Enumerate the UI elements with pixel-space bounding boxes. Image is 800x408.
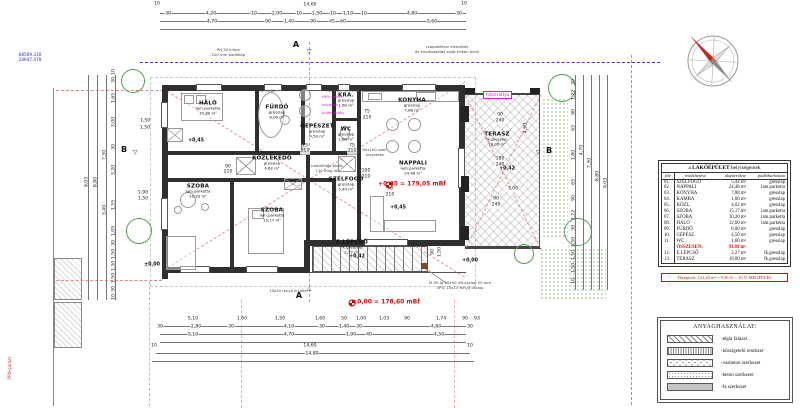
dimension-label: 10	[113, 69, 118, 76]
dimension-label: 210	[385, 194, 395, 199]
legend-item: -fa szerkezet	[667, 381, 783, 393]
dimension-label: 30	[319, 326, 326, 331]
legend-item-label: -beton szerkezet	[721, 373, 754, 378]
dimension-label: 30	[157, 326, 164, 331]
dimension-label: 10	[113, 294, 118, 301]
window	[402, 84, 436, 91]
sw-ins-swatch	[667, 347, 713, 355]
sw-rc-swatch	[667, 359, 713, 367]
furniture	[408, 118, 421, 131]
dimension-label: 210	[362, 117, 372, 122]
sw-brick-swatch	[667, 335, 713, 343]
annotation-marker: A	[293, 41, 299, 49]
dimension-label: 7,30	[589, 157, 594, 168]
annotation-eq: puffertartály	[322, 112, 345, 116]
dimension-label: 1,65	[113, 92, 118, 103]
furniture	[184, 95, 194, 104]
annotation-sill: m=1,80	[261, 90, 276, 94]
dimension-label: 90	[404, 318, 411, 323]
furniture	[408, 140, 421, 153]
dimension-line	[152, 361, 474, 362]
line	[454, 300, 455, 408]
heat-pump-label: hőszivattyú	[483, 91, 512, 99]
dimension-line	[160, 334, 466, 335]
room-schedule-table: a LAKÓÉPÜLET helyiségeinek jelerendeltet…	[661, 163, 788, 264]
schedule-row: 13.TERASZ18,00 m²fk.gresslap	[662, 257, 787, 263]
dimension-label: 5,60	[426, 21, 437, 26]
dimension-label: 1,05	[113, 225, 118, 236]
dimension-label: 30	[573, 79, 578, 86]
annotation-tri: △	[307, 286, 312, 292]
dimension-label: 4,20	[205, 13, 216, 18]
elevation-mark: +0,45	[390, 206, 406, 211]
elevation-mark: +0,42	[499, 167, 515, 172]
dimension-label: 2,80	[190, 326, 201, 331]
dimension-line	[583, 75, 584, 290]
dimension-label: 90	[493, 198, 500, 203]
annotation-eq: HMV tároló	[322, 96, 342, 100]
annotation-marker: B	[546, 147, 552, 155]
dimension-label: 10	[296, 13, 303, 18]
dimension-label: 1,90	[137, 192, 148, 197]
room-label: E.LÉPCSŐfk.gresslap2,27 m²	[336, 239, 368, 254]
furniture	[370, 196, 384, 232]
elevation-mark: ±0,00 = 178,60 mBf	[352, 299, 420, 306]
dimension-label: 30	[356, 326, 363, 331]
furniture	[166, 236, 196, 270]
floor-plan-canvas: a LAKÓÉPÜLET helyiségeinek jelerendeltet…	[0, 0, 800, 408]
dimension-label: 63	[573, 125, 578, 132]
dimension-label: 1,22	[573, 209, 578, 220]
legend-items: -tégla falazat-hőszigetelő rendszer-vasb…	[667, 333, 783, 393]
dimension-line	[160, 326, 466, 327]
elevation-mark: +0,00	[462, 259, 478, 264]
dimension-label: 1,50	[139, 127, 150, 132]
furniture	[174, 206, 182, 214]
sw-wood-swatch	[667, 383, 713, 391]
line	[140, 62, 660, 63]
dimension-label: 1,03	[378, 318, 389, 323]
dimension-label: 1,74	[435, 318, 446, 323]
dimension-label: 4,10	[283, 326, 294, 331]
dimension-label: 75	[364, 111, 371, 116]
furniture	[368, 93, 382, 100]
line	[53, 88, 54, 406]
dimension-label: 4,70	[283, 334, 294, 339]
dimension-label: 14,80	[305, 353, 319, 358]
dimension-label: 1,50	[137, 198, 148, 203]
dimension-label: 90	[497, 114, 504, 119]
annotation-marker: A	[296, 292, 302, 300]
dimension-label: 30	[573, 225, 578, 232]
annotation-note: XPS; 15x15 fenyő oszlop	[437, 286, 484, 290]
elevation-mark: +0,45	[188, 139, 204, 144]
dimension-label: 9,03	[86, 176, 91, 187]
window	[364, 239, 408, 246]
dimension-label: 93	[474, 318, 481, 323]
dimension-label: 50	[341, 318, 348, 323]
dimension-label: 10	[251, 13, 258, 18]
dimension-label: 1,40	[283, 21, 294, 26]
line	[56, 280, 162, 281]
dimension-label: 90	[310, 21, 317, 26]
furniture	[284, 178, 302, 190]
legend-item: -tégla falazat	[667, 333, 783, 345]
room-label: NAPPALIlam.parketta24,48 m²	[399, 160, 427, 175]
dimension-label: 10	[467, 345, 474, 350]
dimension-label: 1,50	[439, 246, 444, 257]
dimension-label: 1,40	[338, 326, 349, 331]
post	[461, 176, 469, 192]
post	[421, 263, 427, 269]
compass-icon	[683, 30, 743, 92]
dimension-label: 30	[467, 326, 474, 331]
sw-conc-swatch	[667, 371, 713, 379]
dimension-label: 210	[223, 171, 233, 176]
legend-item-label: -vasbeton szerkezet	[721, 361, 760, 366]
dimension-label: 10	[330, 13, 337, 18]
dimension-label: 1,50	[311, 13, 322, 18]
elevation-mark: ±0,00	[144, 263, 160, 268]
room-label: SZÉLFOGÓgresslap5,44 m²	[329, 176, 364, 191]
dimension-label: 90	[432, 249, 437, 256]
dimension-label: 210	[300, 150, 310, 155]
room-label: HÁLÓlam.parketta12,60 m²	[196, 100, 221, 115]
room-label: TERASZfk.gresslap18,00 m²	[484, 131, 510, 146]
dimension-label: 1,80	[573, 149, 578, 160]
stair-area	[312, 246, 428, 272]
legend-item-label: -hőszigetelő rendszer	[721, 349, 764, 354]
wall	[336, 118, 361, 121]
annotation-sill: m=1,80	[327, 90, 342, 94]
furniture	[299, 89, 311, 101]
dimension-label: 100	[361, 170, 371, 175]
annotation-blue: 24647.478	[19, 58, 42, 62]
dimension-label: 30	[113, 286, 118, 293]
dimension-label: 5,10	[187, 334, 198, 339]
tree-symbol	[121, 69, 145, 93]
dimension-label: 90	[462, 318, 469, 323]
room-label: GÉPÉSZETgresslap4,50 m²	[300, 123, 334, 138]
post	[461, 106, 469, 122]
post	[465, 88, 475, 94]
annotation-note: és elszikkasztás saját telken belül	[415, 50, 479, 54]
dimension-label: 1,22	[573, 89, 578, 100]
wall	[306, 151, 310, 273]
window	[246, 266, 278, 273]
legend-item-label: -fa szerkezet	[721, 385, 746, 390]
dimension-label: 180	[495, 158, 505, 163]
post	[530, 88, 540, 94]
legend-item: -vasbeton szerkezet	[667, 357, 783, 369]
annotation-note: kivezetés	[366, 153, 384, 157]
tree-symbol	[514, 244, 534, 264]
oldbldg-area	[54, 258, 82, 300]
window	[161, 102, 168, 128]
dimension-label: 10	[151, 345, 158, 350]
line	[631, 55, 632, 405]
dimension-label: 3,20	[113, 164, 118, 175]
dimension-label: 1,50	[573, 236, 578, 247]
dimension-label: 14,60	[303, 345, 317, 350]
dimension-label: 90	[573, 109, 578, 116]
room-label: FÜRDŐgresslap6,00 m²	[265, 104, 288, 119]
materials-legend: ANYAGHASZNÁLAT: -tégla falazat-hőszigete…	[657, 317, 793, 403]
dimension-label: 4,80	[406, 13, 417, 18]
annotation-tri: ▽	[536, 150, 541, 156]
line	[539, 93, 540, 248]
dimension-label: 1,55	[113, 199, 118, 210]
dimension-label: 3,00	[507, 188, 518, 193]
dimension-label: 30	[113, 240, 118, 247]
dimension-label: 10	[573, 278, 578, 285]
dimension-label: 1,50	[113, 272, 118, 283]
furniture	[384, 220, 436, 232]
dimension-label: 4,50	[525, 122, 530, 133]
wall	[357, 151, 361, 246]
tree-symbol	[126, 218, 152, 244]
post	[461, 226, 469, 240]
dimension-label: 1,30	[113, 260, 118, 271]
dimension-label: 3,40	[104, 204, 109, 215]
dimension-label: 40	[366, 334, 373, 339]
line	[310, 272, 466, 273]
furniture	[386, 118, 399, 131]
annotation-tri: ▽	[307, 49, 312, 55]
materials-legend-frame: ANYAGHASZNÁLAT: -tégla falazat-hőszigete…	[660, 320, 790, 400]
dimension-label: 9,03	[605, 177, 610, 188]
furniture	[201, 203, 209, 211]
dimension-label: 8,80	[95, 176, 100, 187]
annotation-tri: ▽	[133, 150, 138, 156]
dimension-label: 7,30	[104, 149, 109, 160]
schedule-title: a LAKÓÉPÜLET helyiségeinek	[662, 164, 787, 173]
furniture	[167, 128, 183, 142]
dimension-label: 1,10	[342, 13, 353, 18]
dimension-label: 4,50	[433, 334, 444, 339]
dimension-line	[599, 75, 600, 290]
dimension-label: 210	[347, 150, 357, 155]
annotation-marker: B	[121, 146, 127, 154]
dimension-label: 2,00	[271, 13, 282, 18]
legend-item-label: -tégla falazat	[721, 337, 747, 342]
room-label: WCgresslap1,60 m²	[338, 126, 354, 141]
dimension-label: 10	[461, 3, 468, 8]
dimension-label: 14,60	[303, 4, 317, 9]
vegetation-area	[542, 98, 568, 238]
dimension-label: 1,50	[139, 120, 150, 125]
annotation-eq: szivattyú	[322, 104, 338, 108]
room-label: KONYHAgresslap7,88 m²	[398, 97, 426, 112]
dimension-label: 1,90	[345, 334, 356, 339]
dimension-label: 1,50	[573, 262, 578, 273]
furniture	[299, 105, 311, 117]
dimension-label: 1,60	[314, 318, 325, 323]
legend-item: -hőszigetelő rendszer	[667, 345, 783, 357]
level-marker-icon	[349, 300, 356, 307]
dimension-label: 4,70	[581, 144, 586, 155]
coverage-summary: Tbeépített: 121,20 m² = 9,36 % < 10 % ME…	[661, 273, 788, 282]
dimension-label: 30	[113, 144, 118, 151]
dimension-label: 10	[154, 3, 161, 8]
tree-symbol	[564, 218, 592, 246]
dimension-line	[160, 29, 466, 30]
dimension-line	[591, 75, 592, 290]
dimension-label: 1,60	[236, 318, 247, 323]
dimension-label: 60	[340, 21, 347, 26]
dimension-label: 1,50	[274, 318, 285, 323]
dimension-label: 1,50	[113, 248, 118, 259]
room-label: KÖZLEKEDŐgresslap4,62 m²	[252, 155, 292, 170]
room-label: SZOBAlam.parketta15,17 m²	[260, 207, 285, 222]
dimension-label: 30	[228, 326, 235, 331]
dimension-label: 90	[573, 195, 578, 202]
dimension-label: 90	[265, 21, 272, 26]
annotation-sill: m=1,80	[345, 90, 360, 94]
window	[196, 84, 222, 91]
room-label: SZOBAlam.parketta10,20 m²	[186, 183, 211, 198]
dimension-label: 5,10	[187, 318, 198, 323]
level-marker-icon	[386, 182, 393, 189]
dimension-label: 63	[573, 179, 578, 186]
window	[161, 198, 168, 230]
dimension-label: 8,80	[597, 170, 602, 181]
annotation-note: - 100 mm padlólap	[209, 53, 245, 57]
dimension-line	[106, 75, 107, 300]
dimension-label: 3,00	[113, 116, 118, 127]
dimension-label: 4,70	[206, 21, 217, 26]
elevation-mark: +0,42	[349, 255, 365, 260]
dimension-label: 1,00	[355, 318, 366, 323]
oldbldg-area	[54, 302, 82, 348]
annotation-redv: PRN-garázs	[8, 357, 12, 380]
dimension-label: 45	[329, 21, 336, 26]
dimension-label: 30	[456, 13, 463, 18]
wall	[230, 178, 234, 273]
dimension-label: 4,80	[430, 326, 441, 331]
dimension-label: 30	[113, 77, 118, 84]
annotation-note: 110 mag.40	[316, 169, 339, 173]
legend-item: -beton szerkezet	[667, 369, 783, 381]
dimension-label: 30	[165, 13, 172, 18]
dimension-label: 240	[491, 204, 501, 209]
dimension-label: 240	[495, 120, 505, 125]
dimension-label: 10	[361, 13, 368, 18]
legend-title: ANYAGHASZNÁLAT:	[667, 324, 783, 330]
dimension-label: 1,50	[573, 249, 578, 260]
